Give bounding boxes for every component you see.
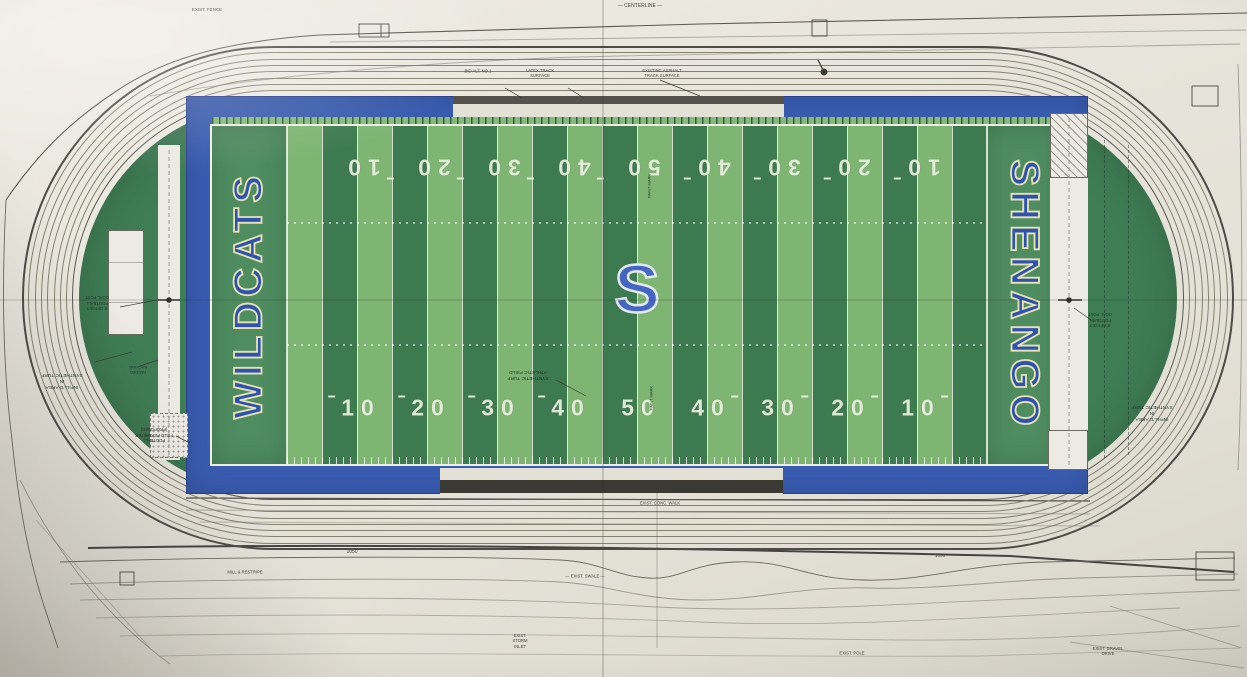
yard-number: 40 bbox=[551, 154, 591, 181]
annotation-note: EXIST. GRAVEL DRIVE bbox=[1093, 646, 1124, 657]
direction-arrow bbox=[597, 178, 604, 180]
annotation-note: PADDED BACKING bbox=[129, 365, 147, 375]
annotation-note: EXIST. STORM INLET bbox=[512, 633, 527, 649]
direction-arrow bbox=[328, 396, 335, 398]
direction-arrow bbox=[801, 396, 808, 398]
yard-number: 30 bbox=[481, 395, 521, 422]
annotation-note: 1050 bbox=[935, 553, 945, 559]
annotation-note: INFILL'D AREA IN SYNTHETIC TURF bbox=[41, 371, 82, 389]
annotation-note: — CENTERLINE — bbox=[618, 3, 662, 9]
annotation-note: EXIST. CONC. WALK bbox=[640, 500, 680, 505]
direction-arrow bbox=[398, 396, 405, 398]
midfield-logo: S bbox=[597, 246, 677, 332]
annotation-note: MILL & RESTRIPE bbox=[227, 569, 262, 574]
endzone-text-wildcats: WILDCATS bbox=[227, 171, 272, 419]
yard-number: 30 bbox=[761, 395, 801, 422]
direction-arrow bbox=[684, 178, 691, 180]
top-paving-bar bbox=[453, 96, 784, 104]
dzone-layout-line bbox=[1104, 140, 1105, 458]
annotation-note: EXISTING ASPHALT TRACK SURFACE bbox=[642, 68, 681, 79]
football-field: WILDCATS SHENANGO S 10203040504030201010… bbox=[0, 0, 1247, 677]
annotation-note: BID ALT. NO.1 bbox=[465, 68, 492, 73]
yard-number: 40 bbox=[551, 395, 591, 422]
site-plan-photo: WILDCATS SHENANGO S 10203040504030201010… bbox=[0, 0, 1247, 677]
yard-number: 20 bbox=[831, 395, 871, 422]
yard-number: 10 bbox=[901, 395, 941, 422]
direction-arrow bbox=[527, 178, 534, 180]
yard-number: 20 bbox=[411, 395, 451, 422]
direction-arrow bbox=[731, 396, 738, 398]
annotation-note: EXIST. FENCE bbox=[192, 7, 222, 13]
right-hatched-pad bbox=[1050, 113, 1088, 178]
direction-arrow bbox=[754, 178, 761, 180]
yard-number: 40 bbox=[691, 395, 731, 422]
yard-number: 50 bbox=[621, 395, 661, 422]
annotation-note: SYNTHETIC TURF ATHLETIC FIELD bbox=[507, 368, 548, 380]
yard-number: 30 bbox=[761, 154, 801, 181]
yard-number: 50 bbox=[621, 154, 661, 181]
yard-number: 20 bbox=[831, 154, 871, 181]
annotation-note: PAINT MARK bbox=[647, 174, 652, 198]
direction-arrow bbox=[824, 178, 831, 180]
yard-number: 10 bbox=[341, 154, 381, 181]
annotation-note: FOOTBALL FIELD PERIMETER (PROPOSED) bbox=[135, 427, 172, 443]
direction-arrow bbox=[457, 178, 464, 180]
yard-number: 30 bbox=[481, 154, 521, 181]
yard-number: 40 bbox=[691, 154, 731, 181]
yard-number: 10 bbox=[901, 154, 941, 181]
right-corner-pad bbox=[1048, 430, 1088, 470]
annotation-note: 1050 bbox=[346, 549, 357, 555]
annotation-note: 8' OFFSET FOOTBALL GOAL POST bbox=[1088, 312, 1112, 328]
annotation-note: 8' OFFSET FOOTBALL GOAL POST bbox=[85, 295, 109, 311]
yard-number: 10 bbox=[341, 395, 381, 422]
annotation-note: — EXIST. SWALE — bbox=[565, 573, 604, 578]
left-jump-pit bbox=[108, 230, 144, 335]
bottom-paving-bar bbox=[440, 480, 783, 493]
direction-arrow bbox=[538, 396, 545, 398]
annotation-note: EXIST. POLE bbox=[839, 650, 864, 655]
direction-arrow bbox=[894, 178, 901, 180]
annotation-note: INFILL'D AREA IN SYNTHETIC TURF bbox=[1131, 403, 1172, 421]
direction-arrow bbox=[387, 178, 394, 180]
annotation-note: LATEX TRACK SURFACE bbox=[526, 68, 554, 79]
dzone-layout-line bbox=[1128, 145, 1129, 455]
direction-arrow bbox=[941, 396, 948, 398]
direction-arrow bbox=[871, 396, 878, 398]
endzone-text-shenango: SHENANGO bbox=[1002, 159, 1047, 430]
direction-arrow bbox=[468, 396, 475, 398]
annotation-note: PAINT MARK bbox=[649, 386, 654, 410]
yard-number: 20 bbox=[411, 154, 451, 181]
